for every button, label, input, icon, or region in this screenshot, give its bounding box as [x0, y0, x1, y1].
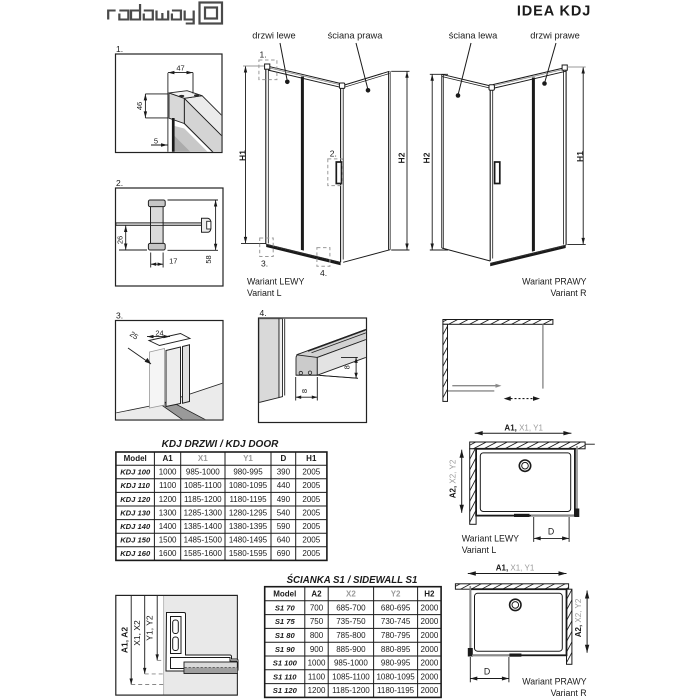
svg-text:H2: H2: [424, 590, 435, 599]
svg-text:1485-1500: 1485-1500: [184, 536, 223, 545]
svg-text:KDJ 100: KDJ 100: [120, 468, 151, 477]
svg-text:Variant L: Variant L: [462, 545, 497, 555]
svg-text:800: 800: [310, 631, 324, 640]
svg-text:2000: 2000: [421, 603, 439, 612]
svg-text:KDJ 110: KDJ 110: [120, 481, 150, 490]
svg-text:685-700: 685-700: [336, 603, 366, 612]
svg-text:S1 100: S1 100: [273, 659, 298, 668]
svg-text:1285-1300: 1285-1300: [184, 508, 223, 517]
svg-text:735-750: 735-750: [336, 617, 366, 626]
svg-text:2005: 2005: [302, 522, 320, 531]
svg-text:Y2: Y2: [391, 590, 401, 599]
svg-text:985-1000: 985-1000: [334, 659, 368, 668]
svg-text:4.: 4.: [260, 308, 267, 318]
svg-text:2000: 2000: [421, 617, 439, 626]
svg-text:1300: 1300: [159, 508, 177, 517]
svg-text:KDJ 120: KDJ 120: [120, 495, 151, 504]
svg-text:1100: 1100: [308, 672, 326, 681]
svg-text:Variant R: Variant R: [550, 288, 586, 298]
svg-text:2000: 2000: [421, 659, 439, 668]
svg-text:S1 90: S1 90: [275, 645, 296, 654]
svg-text:3.: 3.: [116, 311, 123, 321]
svg-text:KDJ DRZWI / KDJ DOOR: KDJ DRZWI / KDJ DOOR: [162, 439, 279, 450]
svg-text:730-745: 730-745: [381, 617, 411, 626]
svg-text:Model: Model: [273, 590, 296, 599]
svg-text:1080-1095: 1080-1095: [229, 481, 268, 490]
svg-text:Y1, Y2: Y1, Y2: [145, 615, 155, 641]
svg-text:1085-1100: 1085-1100: [332, 672, 370, 681]
svg-text:4.: 4.: [320, 268, 327, 278]
svg-text:1200: 1200: [159, 495, 177, 504]
svg-text:H1: H1: [238, 150, 248, 161]
svg-text:980-995: 980-995: [381, 659, 411, 668]
svg-text:S1 110: S1 110: [273, 672, 297, 681]
svg-text:700: 700: [310, 603, 324, 612]
svg-text:2005: 2005: [302, 508, 320, 517]
svg-text:780-795: 780-795: [381, 631, 411, 640]
svg-text:750: 750: [310, 617, 324, 626]
svg-text:KDJ 160: KDJ 160: [120, 549, 151, 558]
svg-text:1.: 1.: [116, 44, 123, 54]
svg-text:1585-1600: 1585-1600: [184, 549, 223, 558]
svg-text:S1 120: S1 120: [273, 686, 298, 695]
svg-text:A1, X1, Y1: A1, X1, Y1: [504, 423, 543, 432]
svg-text:440: 440: [277, 481, 291, 490]
svg-text:885-900: 885-900: [336, 645, 366, 654]
svg-text:3.: 3.: [261, 259, 268, 269]
svg-text:8: 8: [343, 365, 352, 369]
svg-text:24: 24: [155, 328, 163, 337]
svg-text:KDJ 140: KDJ 140: [120, 522, 151, 531]
svg-text:2005: 2005: [302, 495, 320, 504]
svg-text:590: 590: [277, 522, 291, 531]
svg-text:1100: 1100: [159, 481, 177, 490]
svg-text:drzwi prawe: drzwi prawe: [530, 31, 580, 41]
svg-text:A1, A2: A1, A2: [119, 627, 129, 653]
svg-text:26: 26: [115, 236, 124, 244]
svg-text:1600: 1600: [159, 549, 177, 558]
svg-text:1085-1100: 1085-1100: [184, 481, 222, 490]
svg-text:1000: 1000: [308, 659, 326, 668]
svg-text:ściana lewa: ściana lewa: [449, 31, 498, 41]
svg-text:490: 490: [277, 495, 291, 504]
svg-text:1400: 1400: [159, 522, 177, 531]
svg-text:2005: 2005: [302, 536, 320, 545]
svg-text:980-995: 980-995: [233, 468, 263, 477]
svg-text:46: 46: [135, 102, 144, 110]
svg-text:Y1: Y1: [243, 454, 253, 463]
svg-text:S1 75: S1 75: [275, 617, 296, 626]
svg-text:1185-1200: 1185-1200: [332, 686, 370, 695]
svg-text:1580-1595: 1580-1595: [229, 549, 268, 558]
svg-text:Wariant PRAWY: Wariant PRAWY: [522, 677, 586, 687]
svg-text:H1: H1: [306, 454, 317, 463]
svg-text:985-1000: 985-1000: [186, 468, 220, 477]
svg-text:X2: X2: [346, 590, 356, 599]
svg-text:1080-1095: 1080-1095: [376, 672, 415, 681]
svg-text:D: D: [548, 527, 554, 537]
svg-text:drzwi lewe: drzwi lewe: [252, 31, 295, 41]
svg-text:2005: 2005: [302, 481, 320, 490]
svg-text:690: 690: [277, 549, 291, 558]
svg-text:X1: X1: [198, 454, 208, 463]
svg-text:ŚCIANKA S1 / SIDEWALL S1: ŚCIANKA S1 / SIDEWALL S1: [287, 574, 418, 586]
svg-text:H1: H1: [575, 151, 585, 162]
svg-text:Wariant LEWY: Wariant LEWY: [462, 534, 519, 544]
svg-text:D: D: [484, 667, 490, 677]
svg-text:KDJ 150: KDJ 150: [120, 536, 151, 545]
svg-text:390: 390: [277, 468, 291, 477]
svg-text:1480-1495: 1480-1495: [229, 536, 268, 545]
svg-text:S1 80: S1 80: [275, 631, 296, 640]
svg-text:2.: 2.: [116, 178, 123, 188]
svg-text:S1 70: S1 70: [275, 603, 296, 612]
svg-text:900: 900: [310, 645, 324, 654]
svg-text:1280-1295: 1280-1295: [229, 508, 268, 517]
svg-text:680-695: 680-695: [381, 603, 411, 612]
svg-text:A1: A1: [162, 454, 173, 463]
svg-text:1500: 1500: [159, 536, 177, 545]
svg-text:KDJ 130: KDJ 130: [120, 508, 151, 517]
svg-text:1180-1195: 1180-1195: [229, 495, 267, 504]
svg-text:1.: 1.: [260, 50, 267, 60]
svg-text:1385-1400: 1385-1400: [184, 522, 223, 531]
svg-text:H2: H2: [422, 152, 432, 163]
svg-text:Variant R: Variant R: [551, 688, 587, 698]
svg-text:Wariant PRAWY: Wariant PRAWY: [522, 277, 586, 287]
svg-text:A2, X2, Y2: A2, X2, Y2: [574, 598, 583, 637]
svg-text:47: 47: [176, 63, 184, 72]
svg-text:2.: 2.: [330, 149, 337, 159]
svg-text:A1, X1, Y1: A1, X1, Y1: [496, 563, 535, 572]
svg-text:1185-1200: 1185-1200: [184, 495, 222, 504]
svg-text:X1, X2: X1, X2: [132, 620, 142, 646]
svg-text:1000: 1000: [159, 468, 177, 477]
svg-text:640: 640: [277, 536, 291, 545]
svg-text:17: 17: [169, 257, 177, 266]
svg-text:1200: 1200: [308, 686, 326, 695]
svg-text:2005: 2005: [302, 549, 320, 558]
svg-text:2005: 2005: [302, 468, 320, 477]
svg-text:2000: 2000: [421, 645, 439, 654]
svg-text:5: 5: [154, 136, 158, 145]
svg-text:58: 58: [204, 255, 213, 263]
svg-text:ściana prawa: ściana prawa: [328, 31, 384, 41]
svg-text:A2: A2: [311, 590, 322, 599]
svg-text:785-800: 785-800: [336, 631, 366, 640]
svg-text:8: 8: [300, 389, 309, 393]
svg-text:540: 540: [277, 508, 291, 517]
svg-text:1180-1195: 1180-1195: [377, 686, 415, 695]
svg-text:880-895: 880-895: [381, 645, 411, 654]
svg-text:Model: Model: [124, 454, 147, 463]
svg-text:Variant L: Variant L: [247, 288, 282, 298]
svg-text:2000: 2000: [421, 631, 439, 640]
svg-text:A2, X2, Y2: A2, X2, Y2: [449, 459, 458, 498]
svg-text:IDEA KDJ: IDEA KDJ: [517, 4, 591, 20]
svg-text:H2: H2: [397, 152, 407, 163]
svg-text:D: D: [281, 454, 287, 463]
svg-text:1380-1395: 1380-1395: [229, 522, 268, 531]
svg-text:2000: 2000: [421, 686, 439, 695]
svg-text:2000: 2000: [421, 672, 439, 681]
svg-text:Wariant LEWY: Wariant LEWY: [247, 277, 304, 287]
